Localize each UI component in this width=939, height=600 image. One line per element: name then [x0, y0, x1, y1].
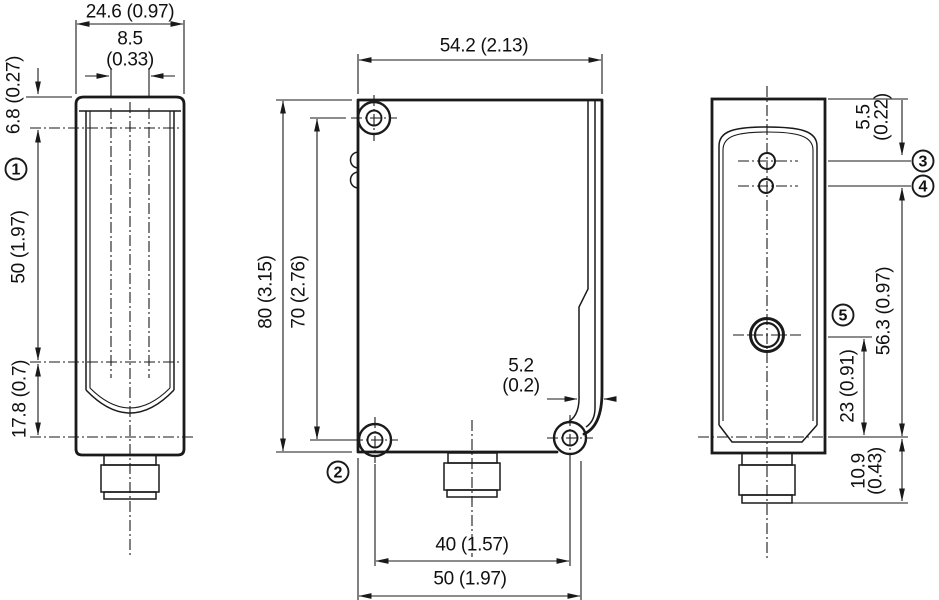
rear-connector: [739, 453, 795, 503]
dim-label-adjuster-to-base: 23 (0.91): [838, 349, 859, 422]
dim-top-to-axis: 6.8 (0.27): [4, 56, 73, 134]
dim-indicator-to-base: 56.3 (0.97): [874, 188, 903, 436]
dim-label-axis-to-bottom: 17.8 (0.7): [10, 360, 31, 438]
callout-1-label: 1: [12, 162, 21, 179]
dim-notch: 5.2 (0.2): [502, 356, 615, 400]
dim-label-top-to-axis: 6.8 (0.27): [4, 56, 25, 134]
dim-label-connector-in: (0.43): [866, 447, 887, 495]
dim-label-front-width: 24.6 (0.97): [86, 2, 175, 23]
dim-label-hole-spacing-horizontal: 40 (1.57): [435, 535, 508, 556]
callout-3-label: 3: [919, 154, 928, 171]
front-view: 24.6 (0.97) 8.5 (0.33) 6.8 (0.27) 50 (1.…: [4, 2, 197, 559]
dim-hole-spacing-vertical: 70 (2.76): [289, 118, 353, 440]
dim-hole-spacing-horizontal: 40 (1.57): [375, 461, 570, 566]
dim-label-hole-offset-in: (0.22): [872, 93, 893, 141]
side-view: 54.2 (2.13) 80 (3.15) 70 (2.76) 5.2 (0.2…: [256, 36, 616, 600]
rear-face-inner: [723, 132, 813, 421]
side-edge-strip-2: [566, 100, 588, 423]
technical-drawing: 24.6 (0.97) 8.5 (0.33) 6.8 (0.27) 50 (1.…: [0, 0, 939, 600]
rear-view: 5.5 (0.22) 3 4 56.3 (0.97) 5 23 (0.91): [698, 86, 934, 558]
callout-2: 2: [328, 462, 349, 483]
dim-axis-to-bottom: 17.8 (0.7): [10, 360, 39, 438]
callout-3: 3: [913, 151, 934, 172]
dim-connector-length: 10.9 (0.43): [789, 439, 908, 503]
dim-label-height: 80 (3.15): [256, 255, 277, 328]
dim-base-width: 50 (1.97): [358, 458, 581, 600]
dim-depth: 54.2 (2.13): [358, 36, 602, 95]
dim-lens-spacing: 8.5 (0.33): [85, 29, 175, 97]
mounting-hole-bottom-right: [547, 415, 593, 461]
dim-label-lens-spacing-in: (0.33): [106, 50, 154, 71]
dim-label-lens-spacing-mm: 8.5: [117, 29, 143, 50]
dim-label-axis-span: 50 (1.97): [9, 210, 30, 283]
dimension-drawing-canvas: 24.6 (0.97) 8.5 (0.33) 6.8 (0.27) 50 (1.…: [0, 0, 939, 600]
rear-face-frame: [719, 127, 817, 442]
callout-1: 1: [6, 159, 27, 180]
dim-label-hole-spacing-vertical: 70 (2.76): [289, 255, 310, 328]
callout-5: 5: [833, 305, 854, 326]
dim-label-notch-in: (0.2): [502, 376, 540, 397]
dim-label-base-width: 50 (1.97): [433, 569, 506, 590]
callout-4-label: 4: [919, 179, 928, 196]
rear-body-outline: [712, 99, 825, 453]
callout-5-label: 5: [839, 308, 848, 325]
callout-2-label: 2: [334, 465, 343, 482]
dim-label-depth: 54.2 (2.13): [440, 36, 529, 57]
dim-label-indicator-to-base: 56.3 (0.97): [874, 267, 895, 356]
callout-4: 4: [913, 176, 934, 197]
dim-adjuster-to-base: 23 (0.91): [828, 337, 872, 435]
dim-hole-offset: 5.5 (0.22): [828, 93, 908, 155]
dim-label-notch-mm: 5.2: [508, 356, 534, 377]
